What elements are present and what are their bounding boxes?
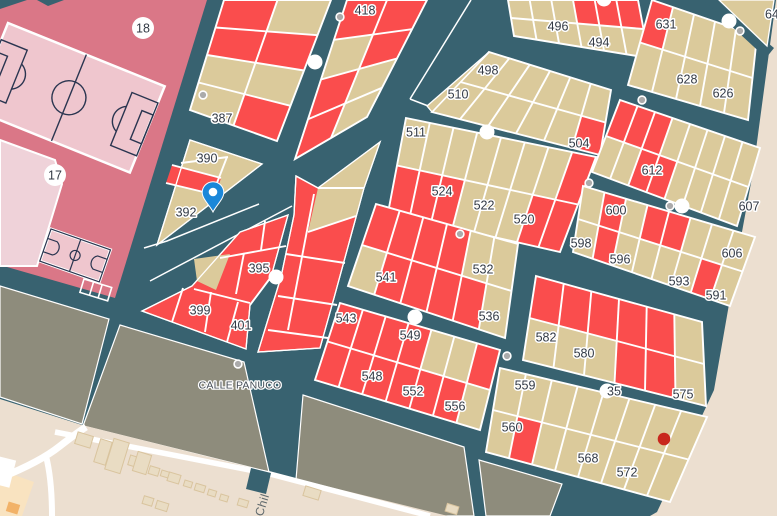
svg-text:600: 600 [606,204,627,218]
svg-text:17: 17 [48,169,62,183]
svg-text:568: 568 [578,452,599,466]
svg-text:390: 390 [197,152,218,166]
svg-text:494: 494 [589,36,610,50]
svg-text:35: 35 [607,385,621,399]
svg-text:64: 64 [765,8,777,22]
svg-text:593: 593 [669,275,690,289]
svg-text:560: 560 [502,421,523,435]
svg-text:612: 612 [642,164,663,178]
svg-text:520: 520 [514,213,535,227]
svg-text:541: 541 [376,271,397,285]
svg-text:498: 498 [478,64,499,78]
svg-text:598: 598 [571,237,592,251]
svg-text:548: 548 [362,370,383,384]
svg-text:596: 596 [610,253,631,267]
svg-text:511: 511 [406,126,426,140]
svg-text:395: 395 [249,262,270,276]
svg-text:387: 387 [212,112,233,126]
svg-text:401: 401 [231,319,252,333]
svg-text:591: 591 [706,289,727,303]
svg-text:572: 572 [617,466,638,480]
svg-text:536: 536 [479,310,500,324]
svg-text:510: 510 [448,88,469,102]
svg-text:626: 626 [713,87,734,101]
svg-text:607: 607 [739,200,760,214]
svg-text:392: 392 [176,206,197,220]
svg-text:580: 580 [574,347,595,361]
svg-text:524: 524 [432,185,453,199]
svg-text:552: 552 [403,385,424,399]
svg-text:504: 504 [569,137,590,151]
svg-text:CALLE PANUCO: CALLE PANUCO [199,380,282,392]
svg-text:543: 543 [336,312,357,326]
svg-text:628: 628 [677,73,698,87]
svg-text:575: 575 [673,388,694,402]
svg-text:559: 559 [515,379,536,393]
svg-text:549: 549 [400,329,421,343]
svg-text:418: 418 [355,4,376,18]
svg-text:532: 532 [473,263,494,277]
svg-text:606: 606 [722,247,743,261]
svg-text:582: 582 [536,331,557,345]
svg-text:556: 556 [445,400,466,414]
svg-text:496: 496 [548,20,569,34]
svg-text:18: 18 [136,22,150,36]
svg-text:399: 399 [190,304,211,318]
svg-text:522: 522 [474,199,495,213]
svg-text:631: 631 [656,18,677,32]
